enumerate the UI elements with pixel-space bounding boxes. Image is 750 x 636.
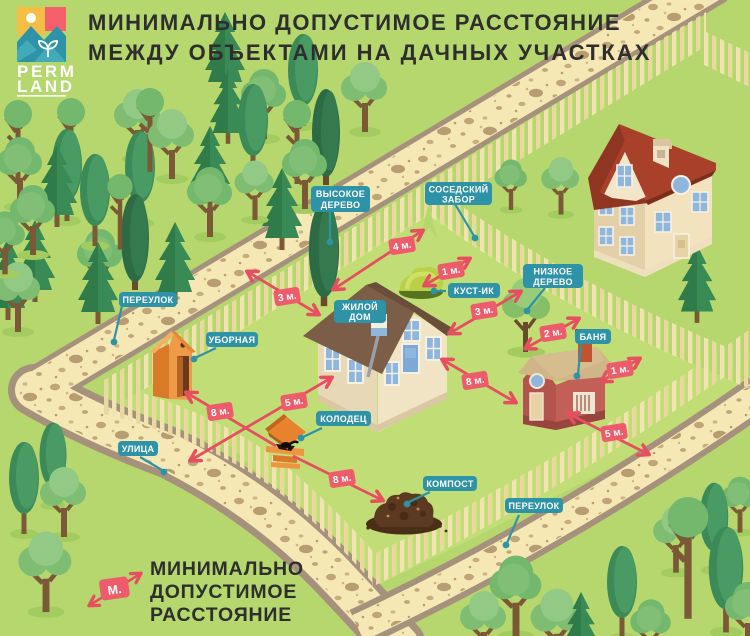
svg-text:МЕЖДУ ОБЪЕКТАМИ НА ДАЧНЫХ УЧАС: МЕЖДУ ОБЪЕКТАМИ НА ДАЧНЫХ УЧАСТКАХ	[88, 40, 651, 65]
svg-text:ЖИЛОЙ: ЖИЛОЙ	[341, 301, 378, 312]
svg-text:ПЕРЕУЛОК: ПЕРЕУЛОК	[509, 501, 560, 511]
svg-text:ПЕРЕУЛОК: ПЕРЕУЛОК	[123, 295, 174, 305]
svg-text:МИНИМАЛЬНО ДОПУСТИМОЕ РАССТОЯН: МИНИМАЛЬНО ДОПУСТИМОЕ РАССТОЯНИЕ	[88, 10, 621, 35]
svg-text:УЛИЦА: УЛИЦА	[122, 444, 155, 454]
svg-text:МИНИМАЛЬНО: МИНИМАЛЬНО	[150, 558, 304, 580]
svg-text:СОСЕДСКИЙ: СОСЕДСКИЙ	[429, 184, 489, 195]
svg-text:УБОРНАЯ: УБОРНАЯ	[209, 335, 256, 345]
svg-text:ДЕРЕВО: ДЕРЕВО	[533, 277, 573, 287]
svg-text:БАНЯ: БАНЯ	[580, 332, 607, 342]
svg-text:РАССТОЯНИЕ: РАССТОЯНИЕ	[150, 604, 292, 626]
svg-text:ДОПУСТИМОЕ: ДОПУСТИМОЕ	[150, 581, 297, 603]
svg-text:LAND: LAND	[17, 77, 75, 96]
svg-text:М.: М.	[107, 582, 123, 598]
svg-text:КУСТ-ИК: КУСТ-ИК	[454, 286, 494, 296]
svg-text:КОМПОСТ: КОМПОСТ	[426, 479, 474, 489]
svg-text:ДОМ: ДОМ	[349, 312, 371, 322]
svg-text:НИЗКОЕ: НИЗКОЕ	[534, 267, 573, 277]
svg-text:КОЛОДЕЦ: КОЛОДЕЦ	[320, 414, 367, 424]
svg-text:ВЫСОКОЕ: ВЫСОКОЕ	[316, 189, 365, 199]
svg-text:ДЕРЕВО: ДЕРЕВО	[321, 200, 361, 210]
svg-text:ЗАБОР: ЗАБОР	[442, 195, 475, 205]
